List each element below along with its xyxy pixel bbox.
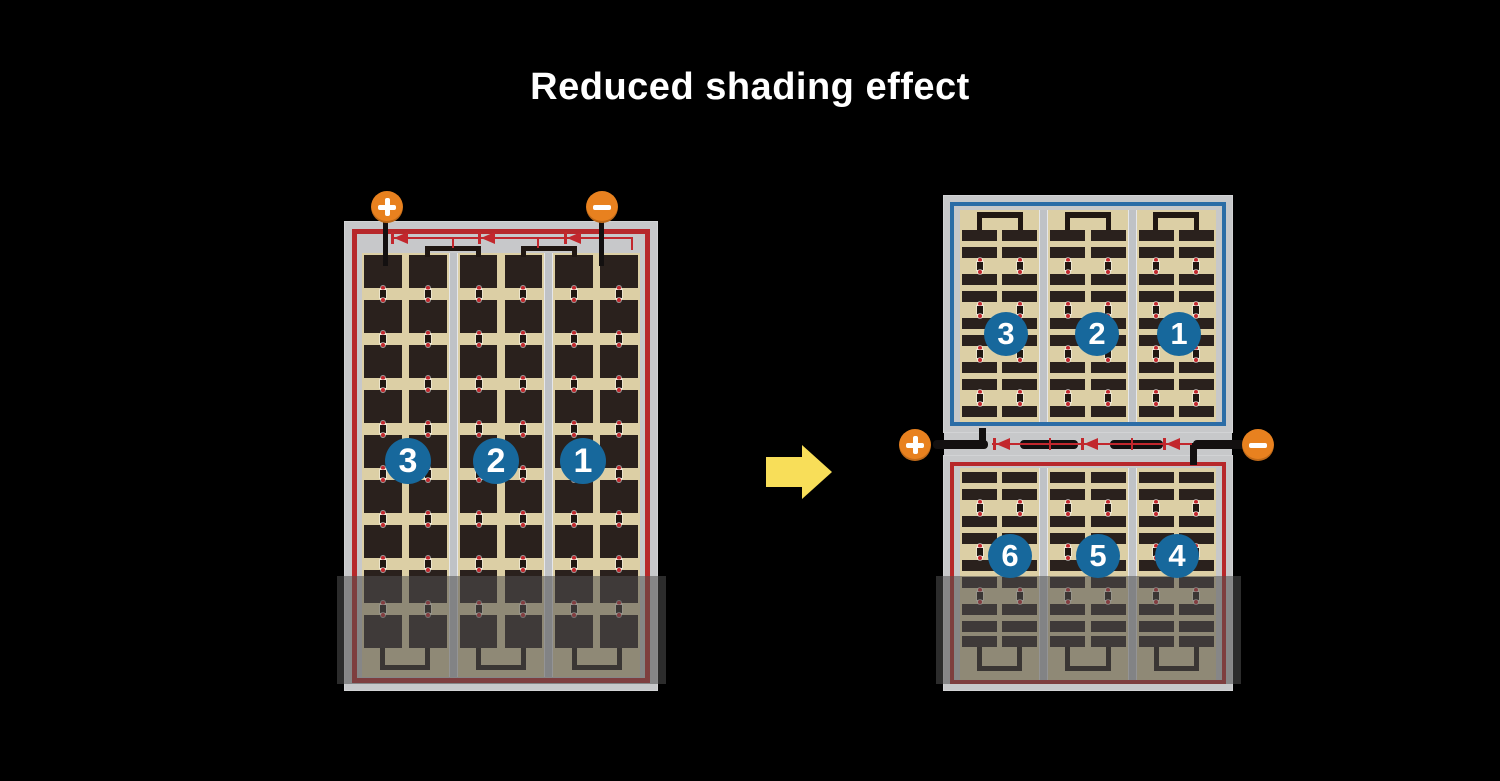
connector-bar [977, 306, 983, 314]
connector-bar [476, 425, 482, 433]
solar-cell [1139, 516, 1174, 527]
cell-connector [520, 466, 526, 482]
connector-bar [476, 290, 482, 298]
connector-bar [571, 290, 577, 298]
connector-dot-bottom [381, 298, 385, 302]
connector-bar [1105, 394, 1111, 402]
connector-dot-bottom [1066, 512, 1070, 516]
connector-dot-bottom [521, 433, 525, 437]
solar-cell [600, 345, 638, 378]
cell-connector [977, 302, 983, 318]
solar-cell [1050, 379, 1085, 390]
connector-bar [520, 380, 526, 388]
solar-cell [1091, 379, 1126, 390]
solar-cell [1050, 362, 1085, 373]
solar-cell [1091, 489, 1126, 500]
connector-bar [520, 290, 526, 298]
connector-dot-bottom [521, 388, 525, 392]
connector-bar [1065, 548, 1071, 556]
solar-cell [364, 345, 402, 378]
solar-cell [505, 300, 543, 333]
connector-bar [1193, 262, 1199, 270]
connector-dot-bottom [1106, 512, 1110, 516]
solar-cell [1050, 472, 1085, 483]
cell-connector [380, 556, 386, 572]
cell-connector [1153, 302, 1159, 318]
connector-dot-bottom [1194, 270, 1198, 274]
connector-bar [571, 425, 577, 433]
connector-dot-bottom [426, 478, 430, 482]
cell-connector [1065, 544, 1071, 560]
connector-bar [520, 335, 526, 343]
solar-cell [1139, 406, 1174, 417]
diode-bus-corner [631, 237, 633, 250]
connector-bar [1105, 306, 1111, 314]
plus-icon-vertical [913, 436, 918, 454]
solar-cell [555, 390, 593, 423]
cell-connector [425, 421, 431, 437]
cell-connector [520, 331, 526, 347]
connector-dot-bottom [477, 478, 481, 482]
connector-bar [1153, 504, 1159, 512]
solar-cell [1179, 489, 1214, 500]
cell-connector [1153, 346, 1159, 362]
solar-cell [1139, 362, 1174, 373]
solar-cell [1050, 489, 1085, 500]
solar-cell [600, 480, 638, 513]
diode-triangle [1166, 438, 1180, 450]
diode-triangle [394, 232, 408, 244]
solar-cell [555, 345, 593, 378]
solar-cell [600, 525, 638, 558]
cell-connector [977, 390, 983, 406]
connector-dot-bottom [617, 568, 621, 572]
connector-bar [520, 470, 526, 478]
connector-dot-bottom [381, 568, 385, 572]
cell-connector [425, 376, 431, 392]
connector-dot-bottom [426, 433, 430, 437]
terminal-minus [1242, 429, 1274, 461]
solar-cell [1139, 274, 1174, 285]
solar-cell [460, 390, 498, 423]
connector-dot-bottom [426, 298, 430, 302]
string-number-badge: 1 [560, 438, 606, 484]
minus-icon [1249, 443, 1267, 448]
solar-cell [1091, 291, 1126, 302]
solar-cell [1050, 230, 1085, 241]
bus-trace [1194, 212, 1199, 230]
connector-dot-bottom [521, 298, 525, 302]
solar-cell [1091, 406, 1126, 417]
connector-dot-bottom [381, 388, 385, 392]
connector-bar [380, 515, 386, 523]
transform-arrow-icon [766, 457, 802, 487]
string-number-badge: 4 [1155, 534, 1199, 578]
connector-bar [616, 425, 622, 433]
solar-cell [1091, 274, 1126, 285]
connector-bar [571, 335, 577, 343]
cell-connector [1017, 500, 1023, 516]
connector-bar [1017, 262, 1023, 270]
connector-bar [977, 350, 983, 358]
connector-dot-bottom [572, 343, 576, 347]
cell-connector [616, 286, 622, 302]
connector-bar [476, 560, 482, 568]
connector-dot-bottom [1194, 358, 1198, 362]
cell-connector [1065, 500, 1071, 516]
cell-connector [571, 556, 577, 572]
connector-dot-bottom [1106, 270, 1110, 274]
cell-connector [616, 331, 622, 347]
connector-bar [380, 380, 386, 388]
connector-dot-bottom [572, 568, 576, 572]
solar-cell [1002, 362, 1037, 373]
connector-bar [1153, 350, 1159, 358]
solar-cell [1091, 247, 1126, 258]
connector-bar [425, 515, 431, 523]
cell-connector [977, 258, 983, 274]
cell-connector [1193, 302, 1199, 318]
solar-cell [460, 525, 498, 558]
connector-dot-bottom [477, 298, 481, 302]
connector-dot-bottom [1018, 402, 1022, 406]
cell-connector [1065, 346, 1071, 362]
cell-connector [977, 500, 983, 516]
solar-cell [1091, 230, 1126, 241]
cell-connector [380, 421, 386, 437]
diode-bus-stub [1049, 438, 1051, 450]
solar-cell [1179, 291, 1214, 302]
connector-dot-bottom [617, 433, 621, 437]
cell-connector [1065, 390, 1071, 406]
cell-connector [476, 286, 482, 302]
solar-cell [409, 390, 447, 423]
cell-connector [1017, 390, 1023, 406]
connector-bar [977, 548, 983, 556]
connector-dot-bottom [521, 568, 525, 572]
solar-cell [962, 274, 997, 285]
bus-trace [521, 246, 526, 257]
connector-bar [616, 380, 622, 388]
cell-connector [1017, 258, 1023, 274]
solar-cell [962, 489, 997, 500]
solar-cell [1179, 516, 1214, 527]
junction-stub [1190, 443, 1197, 465]
cell-connector [520, 376, 526, 392]
connector-dot-bottom [1018, 512, 1022, 516]
connector-dot-bottom [617, 298, 621, 302]
connector-bar [1065, 262, 1071, 270]
solar-cell [555, 255, 593, 288]
connector-dot-bottom [477, 433, 481, 437]
solar-cell [962, 291, 997, 302]
connector-dot-bottom [426, 523, 430, 527]
diode-bus-stub [537, 239, 539, 248]
solar-cell [505, 390, 543, 423]
bus-trace [476, 246, 481, 257]
connector-dot-bottom [1154, 402, 1158, 406]
bus-trace [425, 246, 430, 257]
connector-dot-bottom [1066, 556, 1070, 560]
cell-connector [476, 376, 482, 392]
connector-bar [1065, 306, 1071, 314]
connector-dot-bottom [477, 568, 481, 572]
connector-bar [616, 470, 622, 478]
connector-bar [977, 262, 983, 270]
cell-connector [1193, 390, 1199, 406]
connector-dot-bottom [1018, 358, 1022, 362]
string-number-badge: 5 [1076, 534, 1120, 578]
connector-bar [425, 380, 431, 388]
cell-connector [425, 511, 431, 527]
cell-connector [520, 421, 526, 437]
connector-dot-bottom [426, 388, 430, 392]
connector-bar [1153, 262, 1159, 270]
cell-connector [476, 421, 482, 437]
solar-cell [1050, 406, 1085, 417]
connector-bar [380, 335, 386, 343]
solar-cell [364, 525, 402, 558]
connector-bar [616, 335, 622, 343]
connector-dot-bottom [477, 388, 481, 392]
connector-bar [425, 425, 431, 433]
connector-bar [476, 380, 482, 388]
connector-bar [1193, 504, 1199, 512]
bypass-diode-icon [1081, 438, 1099, 450]
connector-bar [1017, 306, 1023, 314]
connector-dot-bottom [521, 523, 525, 527]
connector-dot-bottom [381, 343, 385, 347]
cell-connector [476, 331, 482, 347]
solar-cell [962, 516, 997, 527]
connector-dot-bottom [572, 523, 576, 527]
connector-dot-bottom [477, 523, 481, 527]
cell-connector [616, 376, 622, 392]
solar-cell [409, 525, 447, 558]
cell-connector [380, 331, 386, 347]
solar-cell [1050, 291, 1085, 302]
diode-triangle [567, 232, 581, 244]
cell-connector [571, 286, 577, 302]
diode-triangle [996, 438, 1010, 450]
connector-dot-bottom [477, 343, 481, 347]
solar-cell [600, 390, 638, 423]
connector-dot-bottom [1154, 512, 1158, 516]
transform-arrow-icon [802, 445, 832, 499]
shading-effect-diagram: 321321654 [0, 0, 1500, 781]
solar-cell [1139, 230, 1174, 241]
diode-bus-stub [1131, 438, 1133, 450]
cell-connector [616, 511, 622, 527]
bus-trace [1153, 212, 1158, 230]
solar-cell [460, 255, 498, 288]
solar-cell [1091, 516, 1126, 527]
cell-connector [571, 421, 577, 437]
solar-cell [505, 255, 543, 288]
shading-overlay [936, 576, 1241, 684]
connector-bar [1017, 394, 1023, 402]
connector-dot-bottom [1066, 314, 1070, 318]
connector-bar [1193, 394, 1199, 402]
cell-connector [1065, 302, 1071, 318]
solar-cell [1139, 489, 1174, 500]
cell-connector [1065, 258, 1071, 274]
terminal-plus [371, 191, 403, 223]
connector-dot-bottom [521, 343, 525, 347]
connector-dot-bottom [1106, 402, 1110, 406]
solar-cell [1179, 406, 1214, 417]
solar-cell [600, 255, 638, 288]
solar-cell [962, 362, 997, 373]
cell-connector [1153, 258, 1159, 274]
connector-bar [520, 515, 526, 523]
connector-bar [1105, 504, 1111, 512]
connector-bar [425, 290, 431, 298]
solar-cell [1179, 230, 1214, 241]
bus-trace [977, 212, 982, 230]
cell-connector [476, 556, 482, 572]
solar-cell [1139, 291, 1174, 302]
string-number-badge: 3 [984, 312, 1028, 356]
solar-cell [962, 406, 997, 417]
connector-dot-bottom [617, 478, 621, 482]
connector-bar [425, 560, 431, 568]
diode-bus-stub [452, 239, 454, 248]
bus-trace [1106, 212, 1111, 230]
connector-dot-bottom [381, 523, 385, 527]
minus-icon [593, 205, 611, 210]
connector-dot-bottom [381, 478, 385, 482]
cell-connector [977, 544, 983, 560]
cell-connector [571, 511, 577, 527]
connector-dot-bottom [1106, 358, 1110, 362]
diode-triangle [481, 232, 495, 244]
cell-connector [425, 556, 431, 572]
connector-dot-bottom [1066, 358, 1070, 362]
cell-connector [1105, 500, 1111, 516]
cell-connector [1193, 258, 1199, 274]
connector-bar [616, 290, 622, 298]
connector-dot-bottom [1194, 314, 1198, 318]
connector-bar [520, 560, 526, 568]
connector-bar [380, 290, 386, 298]
string-number-badge: 3 [385, 438, 431, 484]
solar-cell [1179, 274, 1214, 285]
bypass-diode-icon [478, 232, 496, 244]
cell-connector [1193, 500, 1199, 516]
connector-dot-bottom [521, 478, 525, 482]
connector-dot-bottom [978, 556, 982, 560]
connector-dot-bottom [617, 388, 621, 392]
solar-cell [600, 300, 638, 333]
connector-bar [380, 425, 386, 433]
diode-triangle [1084, 438, 1098, 450]
terminal-plus [899, 429, 931, 461]
solar-cell [1179, 247, 1214, 258]
cell-connector [380, 466, 386, 482]
solar-cell [409, 300, 447, 333]
connector-dot-bottom [1154, 314, 1158, 318]
cell-connector [380, 376, 386, 392]
solar-cell [1002, 274, 1037, 285]
connector-bar [1065, 504, 1071, 512]
solar-cell [555, 525, 593, 558]
cell-connector [380, 511, 386, 527]
connector-bar [1153, 306, 1159, 314]
connector-dot-bottom [1154, 270, 1158, 274]
connector-bar [616, 515, 622, 523]
connector-dot-bottom [426, 343, 430, 347]
string-number-badge: 1 [1157, 312, 1201, 356]
connector-dot-bottom [572, 298, 576, 302]
connector-dot-bottom [978, 512, 982, 516]
cell-connector [616, 556, 622, 572]
solar-cell [1002, 230, 1037, 241]
cell-connector [1105, 390, 1111, 406]
bus-trace [1065, 212, 1070, 230]
connector-dot-bottom [978, 402, 982, 406]
shading-overlay [337, 576, 666, 684]
solar-cell [1091, 472, 1126, 483]
connector-bar [616, 560, 622, 568]
bus-trace [521, 246, 577, 251]
connector-bar [571, 380, 577, 388]
bus-trace [572, 246, 577, 257]
connector-bar [380, 470, 386, 478]
solar-cell [409, 255, 447, 288]
connector-bar [520, 425, 526, 433]
solar-cell [962, 379, 997, 390]
connector-bar [571, 560, 577, 568]
connector-bar [1193, 306, 1199, 314]
connector-bar [977, 394, 983, 402]
cell-connector [425, 331, 431, 347]
string-divider [1039, 210, 1048, 422]
solar-cell [1002, 472, 1037, 483]
junction-bus-black [1193, 440, 1247, 449]
cell-connector [425, 286, 431, 302]
connector-dot-bottom [426, 568, 430, 572]
string-number-badge: 2 [1075, 312, 1119, 356]
cell-connector [1153, 500, 1159, 516]
connector-bar [977, 504, 983, 512]
bypass-diode-icon [1163, 438, 1181, 450]
cell-connector [571, 331, 577, 347]
string-divider [1128, 210, 1137, 422]
junction-stub [979, 428, 986, 446]
connector-dot-bottom [617, 523, 621, 527]
solar-cell [409, 345, 447, 378]
cell-connector [1153, 390, 1159, 406]
cell-connector [476, 511, 482, 527]
solar-cell [460, 480, 498, 513]
connector-bar [476, 335, 482, 343]
solar-cell [1139, 379, 1174, 390]
cell-connector [616, 466, 622, 482]
solar-cell [364, 390, 402, 423]
cell-connector [520, 556, 526, 572]
solar-cell [1002, 291, 1037, 302]
connector-dot-bottom [381, 433, 385, 437]
solar-cell [962, 230, 997, 241]
string-number-badge: 6 [988, 534, 1032, 578]
solar-cell [460, 300, 498, 333]
cell-connector [977, 346, 983, 362]
cell-connector [520, 286, 526, 302]
diode-bus-line [392, 237, 633, 239]
solar-cell [1050, 247, 1085, 258]
connector-bar [476, 515, 482, 523]
